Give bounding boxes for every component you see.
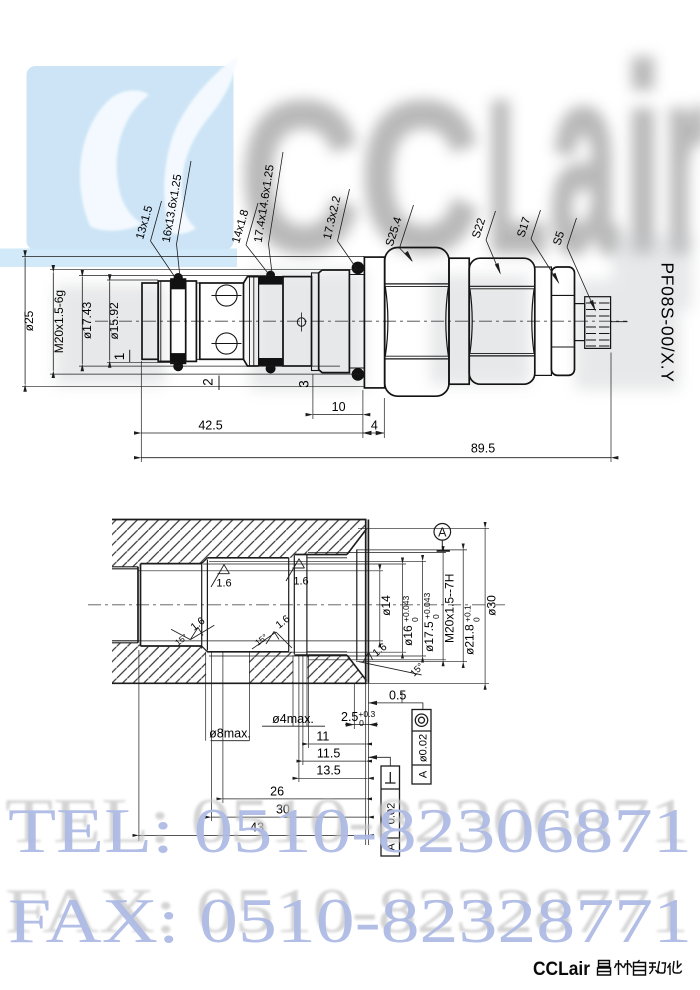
svg-text:ø14: ø14 (379, 595, 393, 616)
svg-text:0: 0 (431, 614, 441, 619)
svg-text:4: 4 (371, 419, 378, 433)
svg-text:ø21.8: ø21.8 (463, 624, 477, 655)
svg-text:ø17.5: ø17.5 (422, 621, 436, 652)
svg-text:FAX: 0510-82328771: FAX: 0510-82328771 (8, 886, 692, 956)
svg-text:42.5: 42.5 (198, 419, 222, 433)
svg-text:TEL: 0510-82306871: TEL: 0510-82306871 (8, 796, 692, 866)
svg-text:ø4max.: ø4max. (272, 712, 314, 726)
svg-text:11: 11 (316, 730, 329, 744)
svg-text:89.5: 89.5 (471, 442, 495, 456)
svg-text:A: A (438, 525, 447, 539)
svg-text:L: L (487, 58, 547, 295)
svg-text:ø16: ø16 (401, 625, 415, 646)
svg-text:M20x1.5-6g: M20x1.5-6g (52, 290, 66, 353)
svg-text:ø30: ø30 (485, 595, 499, 616)
svg-text:CCLair: CCLair (533, 958, 590, 980)
svg-text:3: 3 (297, 380, 312, 388)
svg-text:1: 1 (112, 353, 127, 361)
svg-text:1.6: 1.6 (216, 578, 231, 590)
svg-text:2: 2 (201, 378, 216, 386)
svg-text:M20x1.5--7H: M20x1.5--7H (443, 574, 457, 643)
svg-text:0: 0 (472, 617, 482, 622)
svg-text:0.5: 0.5 (389, 689, 406, 703)
svg-text:ø0.02: ø0.02 (418, 734, 430, 762)
svg-text:a: a (550, 13, 619, 306)
svg-text:ø25: ø25 (22, 310, 36, 331)
svg-text:10: 10 (332, 400, 346, 414)
svg-text:ø8max.: ø8max. (209, 727, 251, 741)
svg-text:11.5: 11.5 (317, 747, 340, 761)
svg-text:13.5: 13.5 (316, 764, 340, 778)
svg-text:0: 0 (410, 617, 420, 622)
svg-text:A: A (418, 770, 430, 778)
svg-text:PF08S-00/X.Y: PF08S-00/X.Y (658, 262, 678, 382)
svg-text:ø17.43: ø17.43 (80, 301, 94, 339)
svg-text:CC: CC (240, 58, 480, 295)
svg-text:1.6: 1.6 (293, 576, 308, 588)
svg-text:ø15.92: ø15.92 (107, 302, 121, 340)
